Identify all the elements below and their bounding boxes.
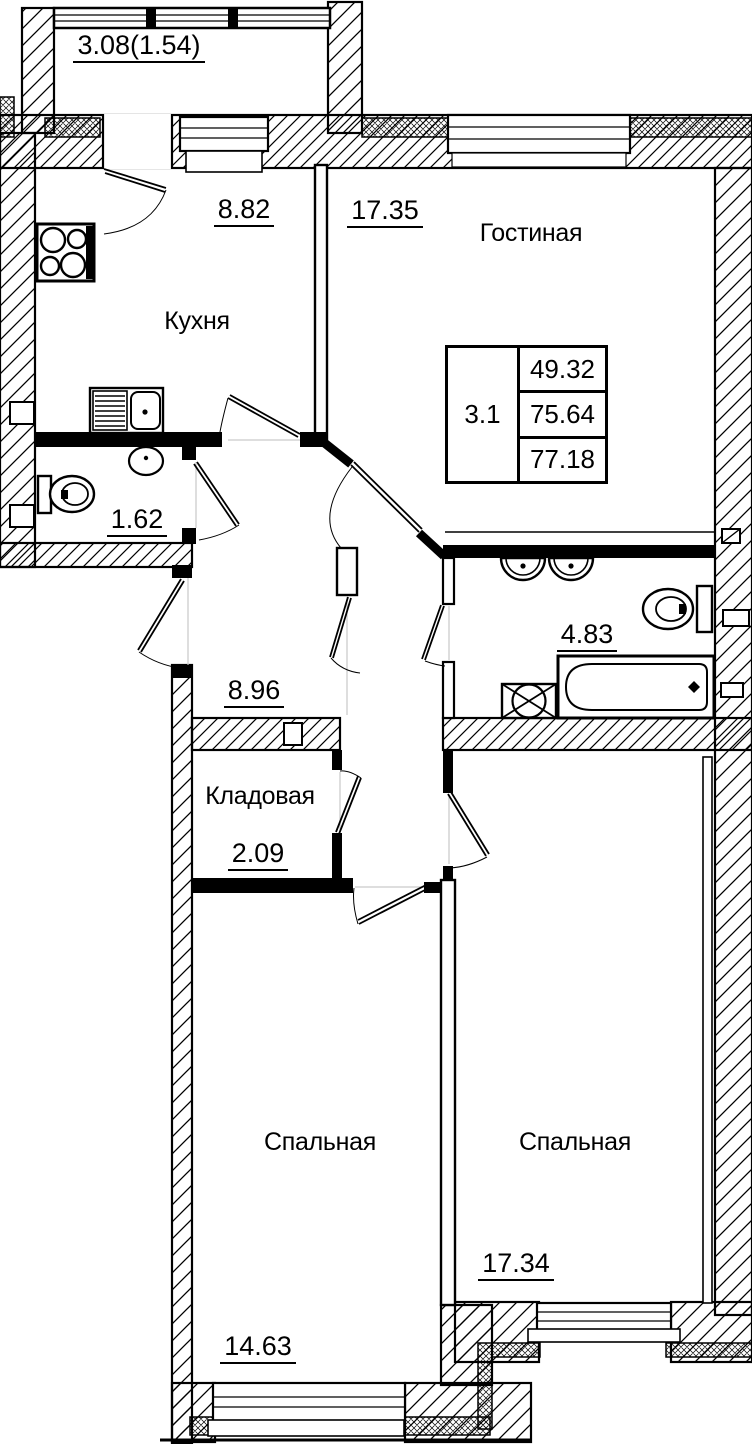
hallway-area-label: 8.96 <box>194 676 314 708</box>
living-room-window <box>448 115 630 167</box>
kitchen-name-label: Кухня <box>137 308 257 334</box>
living-area-value: 49.32 <box>520 348 605 393</box>
stove-icon <box>37 224 94 281</box>
apartment-areas: 49.32 75.64 77.18 <box>520 348 605 481</box>
wc-area-label: 1.62 <box>77 505 197 537</box>
balcony-window <box>54 8 330 28</box>
storage-name-label: Кладовая <box>180 783 340 809</box>
vestibule-door <box>330 597 360 673</box>
toilet-bathroom-icon <box>643 586 712 632</box>
bedroom-left-area-label: 14.63 <box>198 1332 318 1364</box>
wc-door <box>194 462 239 540</box>
insulation-strips <box>0 97 752 1435</box>
bedroom-left-door <box>354 885 428 924</box>
outer-walls <box>0 115 752 1444</box>
bedroom-right-window <box>528 1303 680 1342</box>
apartment-info-table: 3.1 49.32 75.64 77.18 <box>445 345 608 484</box>
washing-machine-icon <box>502 684 556 718</box>
apartment-number: 3.1 <box>448 348 520 481</box>
bedroom-right-door <box>448 792 489 868</box>
balcony-door <box>103 114 172 234</box>
total-area-value: 77.18 <box>520 439 605 481</box>
floor-plan: 3.08(1.54) 8.82 Кухня 17.35 Гостиная 1.6… <box>0 0 752 1444</box>
bedroom-right-name-label: Спальная <box>495 1129 655 1155</box>
double-washbasin-icon <box>501 558 593 580</box>
bedroom-left-name-label: Спальная <box>240 1129 400 1155</box>
bathroom-area-label: 4.83 <box>527 620 647 652</box>
kitchen-area-label: 8.82 <box>184 195 304 227</box>
washbasin-icon <box>129 447 163 475</box>
living-room-door <box>330 462 422 548</box>
living-name-label: Гостиная <box>451 220 611 246</box>
apartment-area-value: 75.64 <box>520 393 605 438</box>
kitchen-door <box>219 395 300 438</box>
kitchen-window <box>180 117 268 172</box>
bedroom-right-area-label: 17.34 <box>456 1249 576 1281</box>
bedroom-left-window <box>208 1383 405 1436</box>
living-area-label: 17.35 <box>325 196 445 228</box>
bathroom-door <box>422 605 445 666</box>
kitchen-sink-icon <box>90 388 163 433</box>
balcony-area-label: 3.08(1.54) <box>59 31 219 63</box>
storage-area-label: 2.09 <box>198 839 318 871</box>
entry-door <box>138 579 184 668</box>
bathtub-icon <box>558 656 714 718</box>
